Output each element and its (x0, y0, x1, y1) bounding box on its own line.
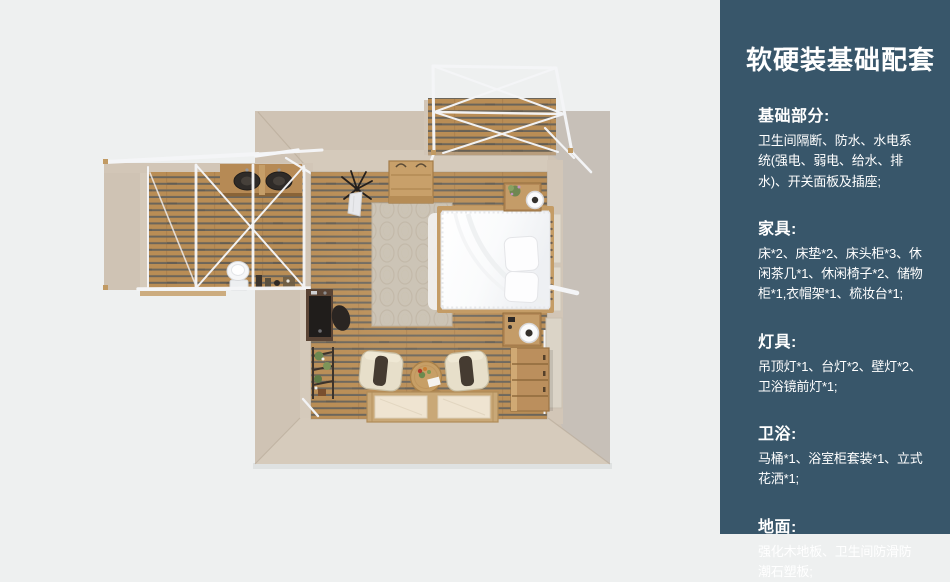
wood-crate (389, 161, 433, 203)
deck-edge (140, 291, 226, 296)
panel-title: 软硬装基础配套 (746, 40, 924, 77)
double-bed (437, 206, 554, 313)
bathroom (103, 150, 322, 296)
section-heading: 地面: (758, 513, 924, 537)
section-heading: 卫浴: (758, 420, 924, 444)
tea-table (411, 362, 442, 396)
slide: 软硬装基础配套 基础部分: 卫生间隔断、防水、水电系统(强电、弱电、给水、排水)… (0, 0, 950, 534)
floor-mats-platform (367, 392, 498, 422)
section-body: 强化木地板、卫生间防滑防潮石塑板; (758, 542, 924, 582)
section-flooring: 地面: 强化木地板、卫生间防滑防潮石塑板; (758, 513, 924, 582)
pillow (504, 271, 539, 303)
lounge-chair-left (358, 350, 404, 392)
pillow (504, 236, 539, 272)
section-body: 马桶*1、浴室柜套装*1、立式花洒*1; (758, 449, 924, 490)
section-body: 卫生间隔断、防水、水电系统(强电、弱电、给水、排水)、开关面板及插座; (758, 131, 924, 192)
section-heading: 灯具: (758, 328, 924, 352)
twin-basin-vanity (220, 164, 302, 197)
section-furniture: 家具: 床*2、床垫*2、床头柜*3、休闲茶几*1、休闲椅子*2、储物柜*1,衣… (758, 215, 924, 305)
nightstand-top (504, 183, 544, 211)
section-bathroom: 卫浴: 马桶*1、浴室柜套装*1、立式花洒*1; (758, 420, 924, 490)
info-panel: 软硬装基础配套 基础部分: 卫生间隔断、防水、水电系统(强电、弱电、给水、排水)… (720, 0, 950, 534)
storage-chest (511, 348, 553, 411)
section-lighting: 灯具: 吊顶灯*1、台灯*2、壁灯*2、卫浴镜前灯*1; (758, 328, 924, 398)
lounge-chair-right (444, 350, 490, 392)
floorplan-render (0, 0, 720, 534)
section-heading: 基础部分: (758, 102, 924, 126)
section-body: 吊顶灯*1、台灯*2、壁灯*2、卫浴镜前灯*1; (758, 357, 924, 398)
nightstand-bottom (503, 313, 541, 346)
section-body: 床*2、床垫*2、床头柜*3、休闲茶几*1、休闲椅子*2、储物柜*1,衣帽架*1… (758, 244, 924, 305)
section-basics: 基础部分: 卫生间隔断、防水、水电系统(强电、弱电、给水、排水)、开关面板及插座… (758, 102, 924, 192)
section-heading: 家具: (758, 215, 924, 239)
top-deck (424, 98, 556, 156)
writing-desk (306, 289, 333, 341)
